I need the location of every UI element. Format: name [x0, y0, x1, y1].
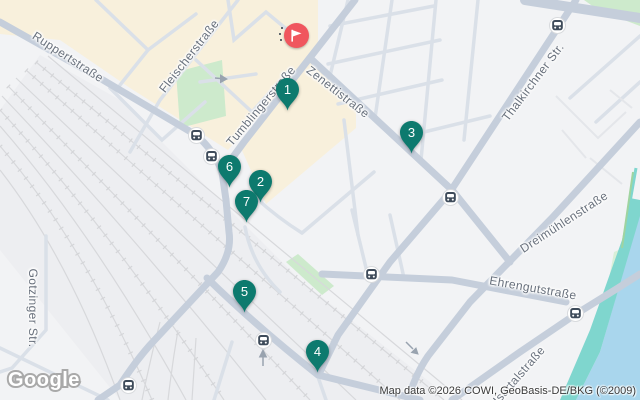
google-logo[interactable]: Google Google [8, 369, 80, 392]
map-pin-4[interactable]: 4 [306, 340, 329, 373]
map-pin-3[interactable]: 3 [400, 121, 423, 154]
flag-marker[interactable] [284, 23, 309, 48]
map-viewport[interactable]: RuppertstraßeFleischerstraßeTumblingerst… [0, 0, 640, 400]
transit-icon [255, 332, 272, 349]
transit-stop[interactable] [363, 266, 380, 283]
transit-icon [363, 266, 380, 283]
pin-number: 7 [242, 194, 249, 209]
map-pin-7[interactable]: 7 [235, 190, 258, 223]
pin-number: 2 [256, 174, 263, 189]
transit-icon [120, 377, 137, 394]
pin-number: 5 [240, 284, 247, 299]
transit-stop[interactable] [549, 17, 566, 34]
transit-icon [188, 127, 205, 144]
pin-number: 3 [407, 125, 414, 140]
pin-number: 6 [225, 159, 232, 174]
transit-icon [549, 17, 566, 34]
map-pin-1[interactable]: 1 [276, 78, 299, 111]
transit-icon [442, 189, 459, 206]
flag-icon [290, 29, 303, 42]
google-logo-text: Google [8, 369, 80, 391]
pin-number: 4 [313, 344, 320, 359]
transit-stop[interactable] [188, 127, 205, 144]
map-pin-6[interactable]: 6 [218, 155, 241, 188]
pin-number: 1 [283, 82, 290, 97]
transit-stop[interactable] [120, 377, 137, 394]
transit-stop[interactable] [255, 332, 272, 349]
transit-stop[interactable] [442, 189, 459, 206]
map-attribution: Map data ©2026 COWI, GeoBasis-DE/BKG (©2… [380, 385, 636, 397]
road-ehrengutstrasse [322, 274, 566, 302]
transit-stop[interactable] [567, 305, 584, 322]
transit-icon [567, 305, 584, 322]
map-pin-5[interactable]: 5 [233, 280, 256, 313]
